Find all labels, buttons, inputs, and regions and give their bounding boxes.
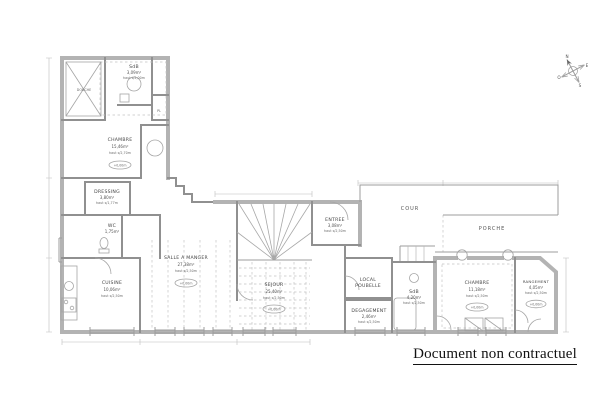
room-name: CUISINE <box>102 280 122 286</box>
compass-south-label: S <box>579 83 582 88</box>
room-level: +0,00m <box>114 164 127 168</box>
room-label-cour: COUR <box>401 206 420 212</box>
room-height: haut s/2,50m <box>324 229 346 233</box>
room-label-sdb2: SdB 4,20m² haut s/2,50m <box>403 289 425 305</box>
room-height: haut s/1,77m <box>96 201 118 205</box>
room-name: SEJOUR <box>265 282 284 288</box>
room-height: haut s/2,50m <box>101 294 123 298</box>
room-label-chambre2: CHAMBRE 11,18m² haut s/2,50m +0,00m <box>465 280 490 311</box>
room-labels: DOUCHE SdB 3,09m² haut s/2,00m PL CHAMBR… <box>77 64 550 324</box>
compass-east-label: E <box>586 63 589 68</box>
compass-rose: N E S O <box>555 53 590 88</box>
room-height: haut s/2,50m <box>403 301 425 305</box>
room-level: +0,00m <box>471 306 484 310</box>
disclaimer-text: Document non contractuel <box>413 346 577 365</box>
room-height: haut s/2,50m <box>466 294 488 298</box>
room-label-rangement: RANGEMENT 4,05m² haut s/2,50m +0,00m <box>523 279 550 308</box>
room-height: haut s/2,50m <box>175 269 197 273</box>
courtyard-porch-boundaries <box>360 185 558 262</box>
ceiling-dashed-lines <box>100 62 512 330</box>
room-label-local-poubelle: LOCAL POUBELLE <box>355 277 381 289</box>
room-area: 15,46m² <box>112 144 129 149</box>
room-area: 25,40m² <box>266 289 283 294</box>
room-level: +0,00m <box>530 303 543 307</box>
room-label-dressing: DRESSING 3,80m² haut s/1,77m <box>94 189 120 205</box>
room-level: +0,00m <box>268 308 281 312</box>
room-area: 3,09m² <box>127 70 142 75</box>
room-name: PL <box>157 109 161 113</box>
room-name: CHAMBRE <box>465 280 490 286</box>
room-height: haut s/2,50m <box>525 291 547 295</box>
room-label-degagement: DEGAGEMENT 2,46m² haut s/2,50m <box>351 308 386 324</box>
room-level: +0,00m <box>180 282 193 286</box>
room-name: DOUCHE <box>77 88 91 92</box>
door-arcs <box>95 202 541 332</box>
room-label-pl: PL <box>157 109 161 113</box>
room-area: 11,18m² <box>469 287 486 292</box>
room-label-porche: PORCHE <box>479 226 506 232</box>
room-height: haut s/2,00m <box>123 76 145 80</box>
compass-west-label: O <box>557 75 561 80</box>
room-name: COUR <box>401 206 420 212</box>
room-label-chambre1: CHAMBRE 15,46m² haut s/2,70m +0,00m <box>108 137 133 169</box>
room-name: LOCAL <box>360 277 376 283</box>
room-area: 2,46m² <box>362 314 377 319</box>
room-name: CHAMBRE <box>108 137 133 143</box>
room-label-sdb1: SdB 3,09m² haut s/2,00m <box>123 64 145 80</box>
staircase <box>237 204 312 260</box>
room-label-entree: ENTREE 3,08m² haut s/2,50m <box>324 217 346 233</box>
room-area: 3,08m² <box>328 223 343 228</box>
room-area: 4,20m² <box>407 295 422 300</box>
interior-partitions <box>62 58 515 332</box>
room-area: 4,05m² <box>529 285 544 290</box>
floor-plan-page: DOUCHE SdB 3,09m² haut s/2,00m PL CHAMBR… <box>0 0 615 410</box>
room-area: 10,06m² <box>104 287 121 292</box>
room-name: RANGEMENT <box>523 279 550 284</box>
room-height: haut s/2,70m <box>109 151 131 155</box>
room-name: SALLE A MANGER <box>164 255 208 261</box>
room-label-cuisine: CUISINE 10,06m² haut s/2,50m <box>101 280 123 298</box>
room-area: 3,80m² <box>100 195 115 200</box>
room-label-wc: WC 1,75m² <box>105 223 120 234</box>
room-label-douche: DOUCHE <box>77 88 91 92</box>
room-name-2: POUBELLE <box>355 283 381 289</box>
room-area: 1,75m² <box>105 229 120 234</box>
compass-north-label: N <box>565 54 568 59</box>
room-label-salle-a-manger: SALLE A MANGER 27,38m² haut s/2,50m +0,0… <box>164 255 208 287</box>
room-height: haut s/2,50m <box>263 296 285 300</box>
room-name: PORCHE <box>479 226 506 232</box>
room-height: haut s/2,50m <box>358 320 380 324</box>
room-area: 27,38m² <box>178 262 195 267</box>
